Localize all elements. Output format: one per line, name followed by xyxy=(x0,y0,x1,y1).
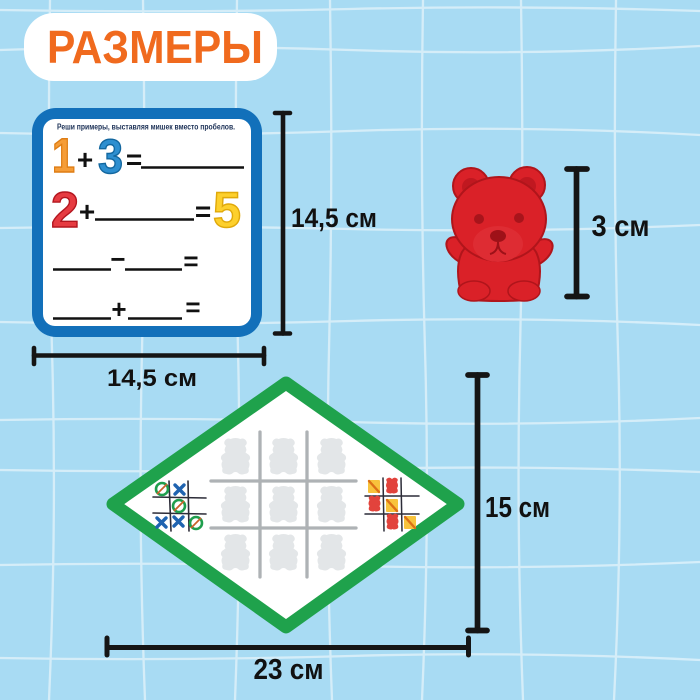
svg-text:Реши примеры, выставляя мишек: Реши примеры, выставляя мишек вместо про… xyxy=(57,123,235,132)
svg-text:3: 3 xyxy=(98,131,123,184)
svg-text:=: = xyxy=(195,196,211,227)
svg-text:−: − xyxy=(110,244,125,274)
svg-text:РАЗМЕРЫ: РАЗМЕРЫ xyxy=(47,21,263,73)
svg-text:5: 5 xyxy=(213,182,241,238)
svg-text:14,5 см: 14,5 см xyxy=(107,365,197,392)
svg-text:3 см: 3 см xyxy=(592,210,650,243)
svg-text:=: = xyxy=(185,292,200,322)
svg-text:=: = xyxy=(183,246,198,276)
svg-text:+: + xyxy=(111,294,126,324)
svg-text:2: 2 xyxy=(51,182,79,238)
svg-text:+: + xyxy=(79,196,95,227)
svg-text:15 см: 15 см xyxy=(485,492,550,524)
svg-text:+: + xyxy=(77,144,93,175)
svg-text:=: = xyxy=(126,144,142,175)
svg-text:1: 1 xyxy=(52,130,75,183)
svg-text:23 см: 23 см xyxy=(254,654,324,686)
svg-text:14,5 см: 14,5 см xyxy=(291,203,377,233)
